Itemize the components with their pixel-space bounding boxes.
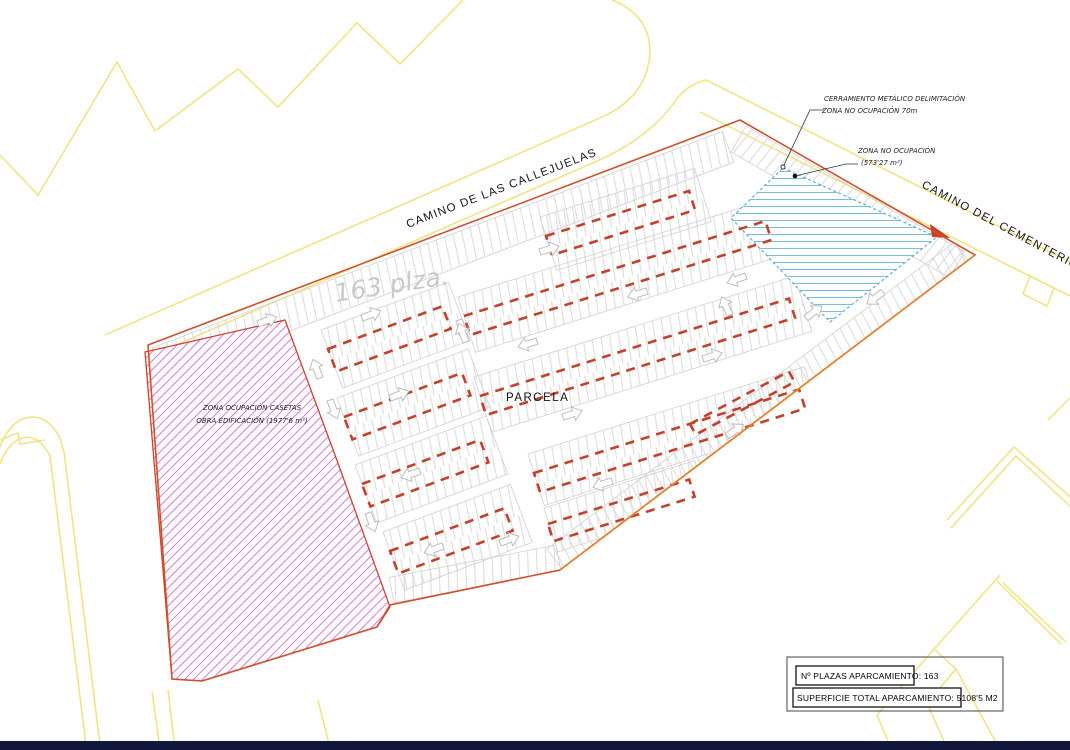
cerramiento-point-marker xyxy=(781,165,785,169)
callout-cerramiento-line2: ZONA NO OCUPACIÓN 70m xyxy=(821,106,918,115)
bottom-edge-bar xyxy=(0,741,1070,750)
zona-no-ocupacion-label: ZONA NO OCUPACIÓN xyxy=(857,146,936,155)
zona-ocupacion-label-line1: ZONA OCUPACIÓN CASETAS xyxy=(202,403,302,412)
summary-table: Nº PLAZAS APARCAMIENTO: 163 SUPERFICIE T… xyxy=(787,657,1003,711)
zona-ocupacion-label-line2: OBRA EDIFICACIÓN (1977'6 m²) xyxy=(196,416,308,425)
site-plan: ZONA OCUPACIÓN CASETAS OBRA EDIFICACIÓN … xyxy=(0,0,1070,750)
summary-plazas-text: Nº PLAZAS APARCAMIENTO: 163 xyxy=(801,671,939,681)
zona-point-marker xyxy=(793,174,798,179)
zona-no-ocupacion-area: (573'27 m²) xyxy=(861,159,903,167)
callout-cerramiento-line1: CERRAMIENTO METÁLICO DELIMITACIÓN xyxy=(824,94,966,103)
parcela-label: PARCELA xyxy=(506,392,569,404)
summary-superficie-text: SUPERFICIE TOTAL APARCAMIENTO: 5108'5 M2 xyxy=(797,693,998,703)
